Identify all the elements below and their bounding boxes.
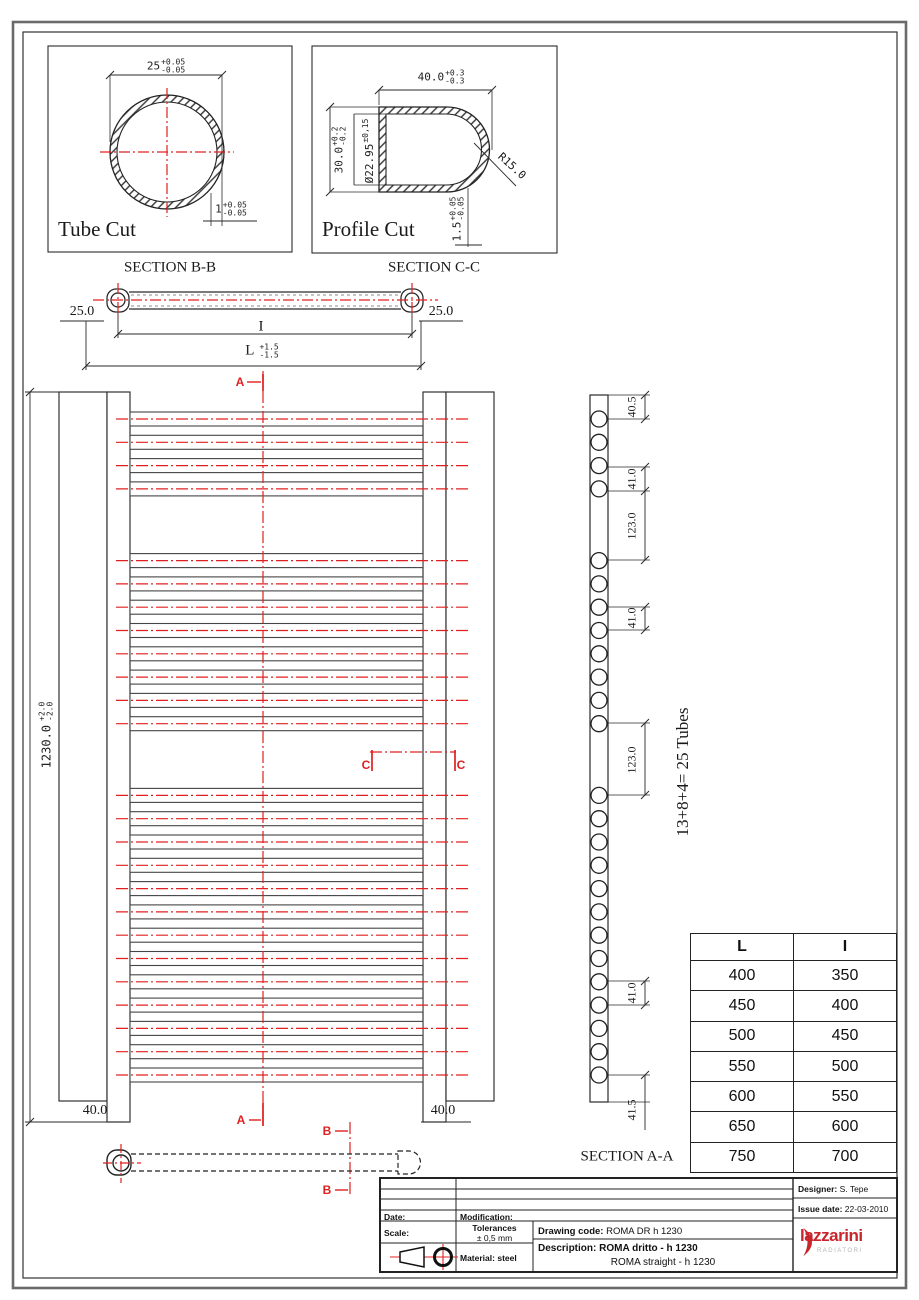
profile-wall-dim: 1.5 +0.05-0.05 bbox=[450, 197, 465, 242]
section-aa-dim-label: 123.0 bbox=[625, 747, 640, 774]
tube-cut-centerlines bbox=[100, 88, 234, 217]
section-b-marker-bottom: B bbox=[323, 1183, 332, 1197]
front-view-tubes bbox=[116, 412, 470, 1082]
modification-label: Modification: bbox=[460, 1212, 513, 1222]
tube-cut-title: Tube Cut bbox=[58, 217, 136, 242]
section-b-marker-top: B bbox=[323, 1124, 332, 1138]
size-table: L I 400350450400500450550500600550650600… bbox=[690, 933, 897, 1173]
section-bb-label: SECTION B-B bbox=[124, 260, 216, 277]
section-a-marker-bottom: A bbox=[237, 1113, 246, 1127]
projection-symbol bbox=[390, 1244, 458, 1270]
size-table-header-L: L bbox=[691, 934, 794, 961]
table-row: 550500 bbox=[691, 1051, 897, 1081]
table-row: 750700 bbox=[691, 1142, 897, 1172]
size-table-body: 4003504504005004505505006005506506007507… bbox=[691, 961, 897, 1173]
material-cell: Material: steel bbox=[460, 1253, 517, 1263]
description-cell: Description: ROMA dritto - h 1230 bbox=[538, 1243, 698, 1254]
top-view-right-offset: 25.0 bbox=[429, 304, 454, 320]
top-view-length-dim: L +1.5-1.5 bbox=[245, 343, 278, 360]
top-view-inner-length-label: I bbox=[259, 319, 264, 336]
tube-cut-diameter-dim: 25 +0.05-0.05 bbox=[147, 59, 185, 74]
section-aa-dim-label: 40.5 bbox=[625, 397, 640, 418]
table-row: 400350 bbox=[691, 961, 897, 991]
profile-height-dim: 30.0 +0.2-0.2 bbox=[332, 127, 347, 174]
table-row: 650600 bbox=[691, 1112, 897, 1142]
tube-count-note: 13+8+4= 25 Tubes bbox=[673, 708, 693, 837]
section-aa-label: SECTION A-A bbox=[581, 1149, 674, 1166]
tube-cut-wall-dim: 1 +0.05-0.05 bbox=[215, 202, 247, 217]
table-row: 450400 bbox=[691, 991, 897, 1021]
table-row: 500450 bbox=[691, 1021, 897, 1051]
bottom-view bbox=[107, 1150, 421, 1175]
tolerances-cell: Tolerances ± 0,5 mm bbox=[456, 1223, 533, 1243]
rail-width-left: 40.0 bbox=[83, 1103, 108, 1119]
lazzarini-logo-icon bbox=[800, 1228, 813, 1256]
size-table-header-I: I bbox=[794, 934, 897, 961]
section-c-marker-left: C bbox=[362, 758, 371, 772]
profile-width-dim: 40.0 +0.3-0.3 bbox=[418, 70, 465, 85]
section-c-marker-right: C bbox=[457, 758, 466, 772]
drawing-code-cell: Drawing code: ROMA DR h 1230 bbox=[538, 1226, 682, 1237]
technical-drawing-sheet: 25 +0.05-0.05 1 +0.05-0.05 Tube Cut SECT… bbox=[0, 0, 919, 1300]
section-a-marker-top: A bbox=[236, 375, 245, 389]
section-aa-strip bbox=[590, 395, 608, 1102]
scale-label: Scale: bbox=[384, 1228, 409, 1238]
profile-cut-title: Profile Cut bbox=[322, 217, 415, 242]
date-label: Date: bbox=[384, 1212, 405, 1222]
front-height-dim: 1230.0 +2.0-2.0 bbox=[39, 702, 54, 769]
section-aa-dim-label: 123.0 bbox=[625, 513, 640, 540]
description-alt: ROMA straight - h 1230 bbox=[533, 1257, 793, 1268]
section-aa-dim-label: 41.0 bbox=[625, 469, 640, 490]
top-view-centerlines bbox=[93, 283, 438, 317]
profile-inner-diameter-dim: Ø22.95 ±0,15 bbox=[361, 119, 377, 184]
lazzarini-logo: lazzarini RADIATORI bbox=[800, 1228, 892, 1259]
designer-cell: Designer: S. Tepe bbox=[798, 1184, 868, 1194]
section-cc-label: SECTION C-C bbox=[388, 260, 480, 277]
top-view-left-offset: 25.0 bbox=[70, 304, 95, 320]
issue-date-cell: Issue date: 22-03-2010 bbox=[798, 1204, 888, 1214]
section-aa-dim-label: 41.0 bbox=[625, 983, 640, 1004]
section-aa-dim-label: 41.5 bbox=[625, 1100, 640, 1121]
section-aa-dim-label: 41.0 bbox=[625, 608, 640, 629]
size-table-header-row: L I bbox=[691, 934, 897, 961]
rail-width-right: 40.0 bbox=[431, 1103, 456, 1119]
table-row: 600550 bbox=[691, 1082, 897, 1112]
